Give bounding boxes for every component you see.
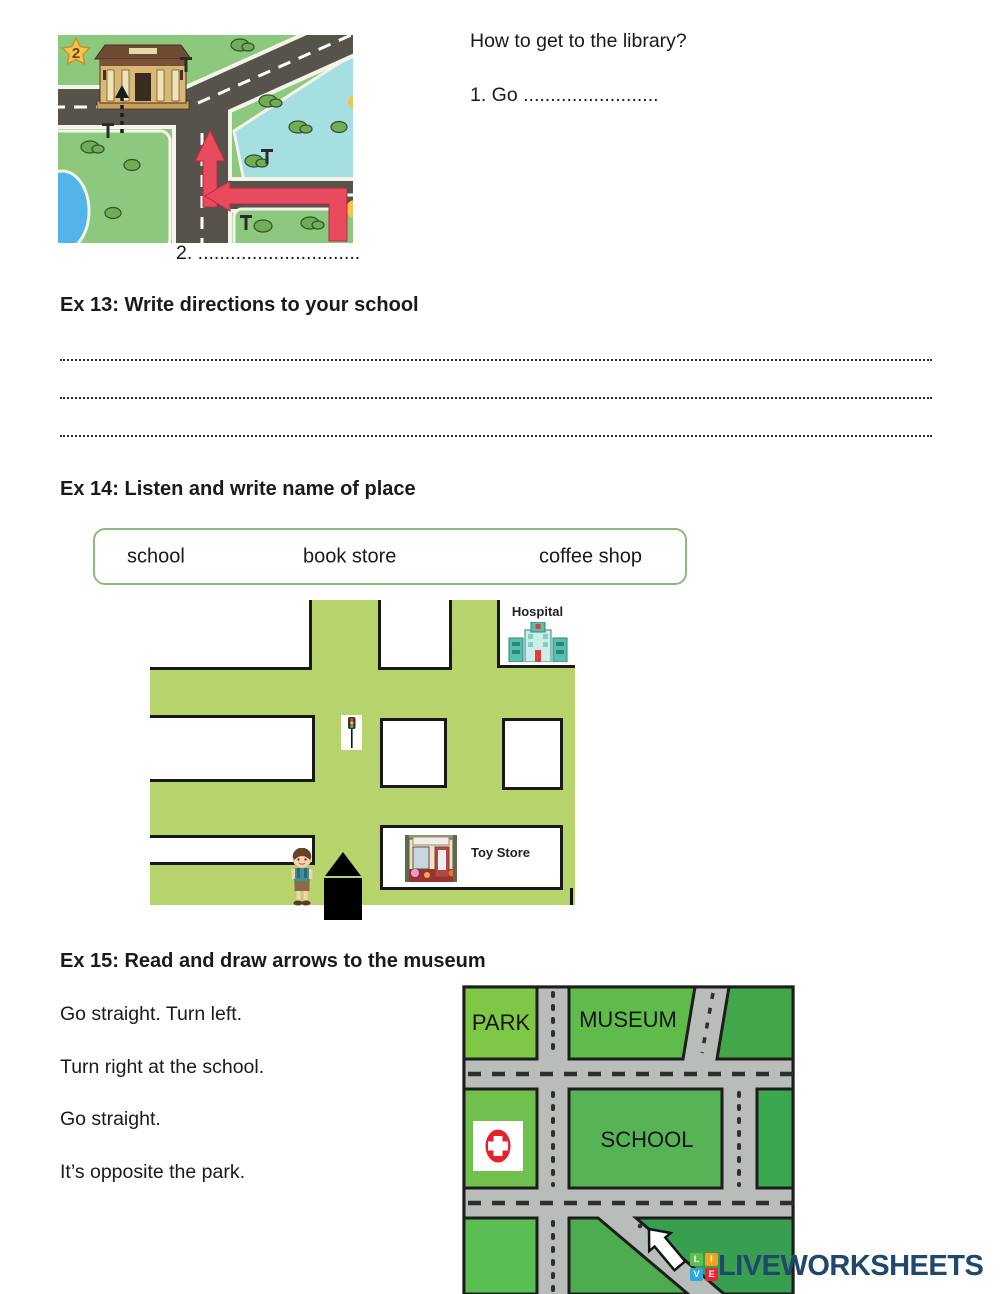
ex15-instruction-1: Go straight. Turn left.: [60, 1003, 242, 1026]
logo-text: LIVEWORKSHEETS: [718, 1250, 983, 1283]
map-edge-mark: [570, 888, 573, 905]
answer-line[interactable]: [60, 357, 932, 361]
hospital-label: Hospital: [512, 604, 563, 619]
library-question: How to get to the library?: [470, 30, 687, 53]
town-map-illustration: Hospital: [150, 600, 575, 905]
ex15-instruction-3: Go straight.: [60, 1108, 161, 1131]
school-label: SCHOOL: [601, 1127, 694, 1152]
ex14-title: Ex 14: Listen and write name of place: [60, 478, 416, 501]
map-block-toy-store: Toy Store: [380, 825, 563, 890]
toy-store-label: Toy Store: [471, 845, 530, 860]
ex15-title: Ex 15: Read and draw arrows to the museu…: [60, 950, 486, 973]
logo-tile-l: L: [690, 1253, 703, 1266]
ex15-instruction-4: It’s opposite the park.: [60, 1161, 245, 1184]
boy-icon: [288, 848, 316, 906]
logo-tile-i: I: [705, 1253, 718, 1266]
liveworksheets-logo[interactable]: L I V E LIVEWORKSHEETS: [690, 1252, 990, 1288]
map-block-hospital: Hospital: [497, 600, 575, 668]
hospital-building-icon: [507, 622, 569, 662]
star-badge-number: 2: [72, 45, 80, 62]
library-map-illustration: 2: [58, 35, 353, 243]
map-block: [502, 718, 563, 790]
answer-line[interactable]: [60, 433, 932, 437]
map-block: [378, 600, 452, 670]
hospital-cross-icon: [473, 1121, 523, 1171]
traffic-light-icon: [341, 715, 362, 750]
logo-tile-e: E: [705, 1268, 718, 1281]
park-label: PARK: [472, 1010, 531, 1035]
map-block: [150, 715, 315, 782]
ex13-title: Ex 13: Write directions to your school: [60, 294, 419, 317]
word-bank-item-school: school: [127, 545, 185, 568]
library-building-icon: [95, 45, 191, 109]
word-bank: school book store coffee shop: [93, 528, 687, 585]
word-bank-item-book-store: book store: [303, 545, 396, 568]
map-block: [380, 718, 447, 788]
library-answer-1[interactable]: 1. Go .........................: [470, 84, 659, 107]
map-block: [150, 600, 312, 670]
museum-label: MUSEUM: [579, 1007, 677, 1032]
start-arrow-icon: [320, 852, 366, 920]
ex15-instruction-2: Turn right at the school.: [60, 1056, 264, 1079]
library-answer-2[interactable]: 2. ..............................: [176, 242, 360, 265]
logo-tile-v: V: [690, 1268, 703, 1281]
worksheet-page: 2 How to get t: [0, 0, 1000, 1294]
museum-map-illustration: PARK MUSEUM SCHOOL: [462, 985, 795, 1294]
answer-line[interactable]: [60, 395, 932, 399]
word-bank-item-coffee-shop: coffee shop: [539, 545, 642, 568]
toy-store-icon: [405, 835, 457, 882]
